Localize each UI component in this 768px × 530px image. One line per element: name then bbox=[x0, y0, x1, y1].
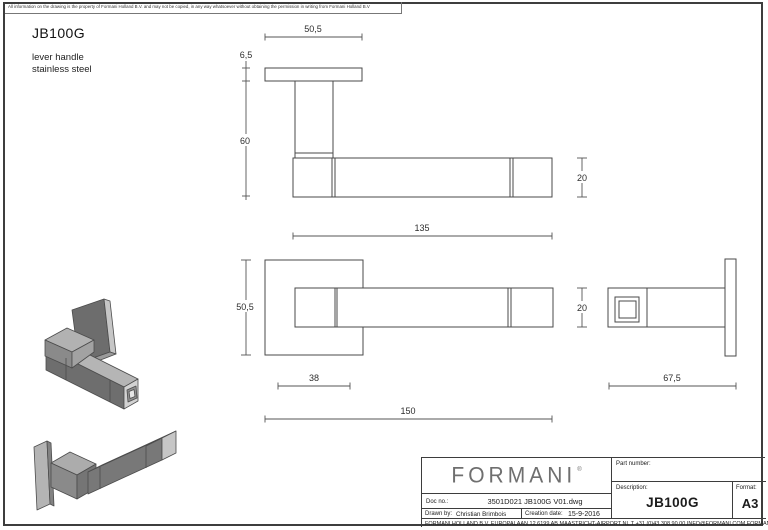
dim-label-front-bar-height: 20 bbox=[577, 303, 587, 313]
side-view-dim-labels: 67,5 bbox=[663, 373, 681, 383]
side-view-outline bbox=[608, 259, 736, 356]
drawn-by-row: Drawn by: Christian Brimbois Creation da… bbox=[422, 509, 611, 519]
description-cell: Description: JB100G bbox=[611, 482, 732, 519]
dim-label-plate-thickness: 6,5 bbox=[240, 50, 253, 60]
part-number-label: Part number: bbox=[616, 461, 651, 467]
part-number-cell: Part number: bbox=[611, 458, 766, 482]
format-cell: Format: A3 bbox=[732, 482, 766, 519]
format-value: A3 bbox=[733, 496, 767, 511]
title-block: FORMANI ® Doc no.: 3501D021 JB100G V01.d… bbox=[421, 457, 765, 527]
dim-label-top-bar-height: 20 bbox=[577, 173, 587, 183]
dim-label-rose-size: 50,5 bbox=[236, 302, 254, 312]
creation-date-value: 15-9-2016 bbox=[568, 511, 600, 518]
creation-date-cell: Creation date: 15-9-2016 bbox=[521, 509, 611, 519]
dim-label-bar-length: 135 bbox=[414, 223, 429, 233]
creation-date-label: Creation date: bbox=[525, 511, 563, 517]
front-view-outline bbox=[265, 260, 553, 355]
dim-label-plate-width: 50,5 bbox=[304, 24, 322, 34]
company-address: FORMANI HOLLAND B.V. EUROPALAAN 12 6199 … bbox=[422, 521, 768, 527]
front-view-dimensions bbox=[241, 260, 587, 423]
format-label: Format: bbox=[736, 485, 757, 491]
top-view-dimensions bbox=[242, 34, 587, 240]
dim-label-side-depth: 67,5 bbox=[663, 373, 681, 383]
formani-logo: FORMANI bbox=[451, 463, 576, 488]
dim-label-total-length: 150 bbox=[400, 406, 415, 416]
title-block-logo-cell: FORMANI ® bbox=[422, 458, 611, 494]
drawn-by-label: Drawn by: bbox=[425, 511, 452, 517]
side-view-dimensions bbox=[609, 383, 736, 390]
drawn-by-value: Christian Brimbois bbox=[456, 511, 506, 518]
dim-label-neck-length: 60 bbox=[240, 136, 250, 146]
doc-no-label: Doc no.: bbox=[426, 499, 448, 505]
description-label: Description: bbox=[616, 485, 648, 491]
render-back-iso bbox=[34, 431, 176, 510]
technical-drawing-canvas: 50,5 6,5 60 20 135 bbox=[0, 0, 768, 530]
dim-label-offset: 38 bbox=[309, 373, 319, 383]
description-value: JB100G bbox=[612, 495, 733, 510]
top-view-outline bbox=[265, 68, 552, 197]
drawing-sheet: All information on the drawing is the pr… bbox=[0, 0, 768, 530]
doc-no-row: Doc no.: 3501D021 JB100G V01.dwg bbox=[422, 494, 611, 509]
registered-trademark-symbol: ® bbox=[577, 467, 581, 473]
top-view-dim-labels: 50,5 6,5 60 20 135 bbox=[236, 24, 592, 233]
render-front-iso bbox=[45, 299, 138, 409]
doc-no-value: 3501D021 JB100G V01.dwg bbox=[460, 497, 610, 506]
title-block-footer: FORMANI HOLLAND B.V. EUROPALAAN 12 6199 … bbox=[422, 519, 766, 528]
